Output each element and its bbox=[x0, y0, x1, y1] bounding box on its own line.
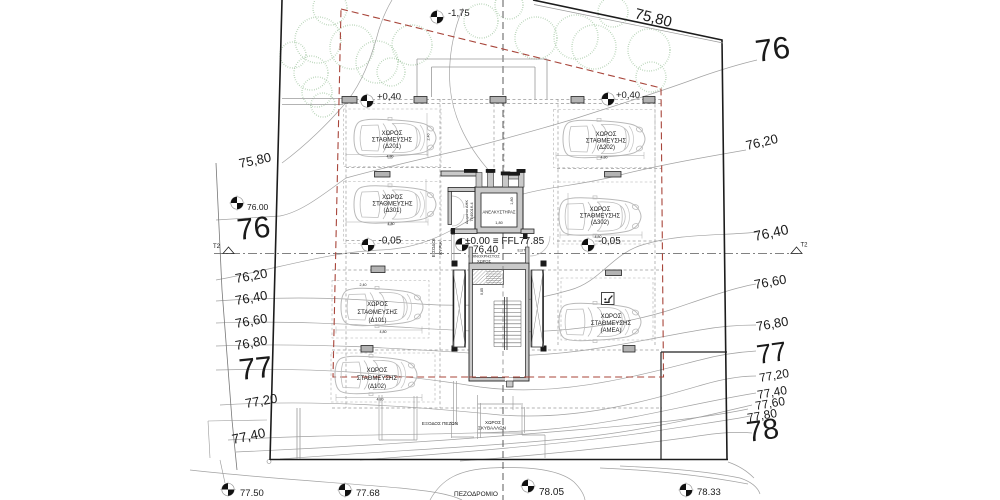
svg-text:ΕΞΙΤ: ΕΞΙΤ bbox=[518, 249, 527, 253]
svg-text:4,80: 4,80 bbox=[380, 330, 387, 334]
svg-text:4,80: 4,80 bbox=[377, 398, 384, 402]
svg-text:ΣΤΑΘΜΕΥΣΗΣ: ΣΤΑΘΜΕΥΣΗΣ bbox=[357, 376, 398, 382]
svg-text:ΣΤΑΘΜΕΥΣΗΣ: ΣΤΑΘΜΕΥΣΗΣ bbox=[580, 214, 621, 220]
svg-text:77.50: 77.50 bbox=[240, 488, 264, 499]
svg-text:ΧΩΡΟΣ: ΧΩΡΟΣ bbox=[367, 302, 388, 308]
svg-text:ΕΞΟΔΟΣ ΠΕΖΩΝ: ΕΞΟΔΟΣ ΠΕΖΩΝ bbox=[422, 421, 458, 426]
svg-text:1,80: 1,80 bbox=[510, 197, 514, 204]
svg-text:78.33: 78.33 bbox=[697, 487, 721, 498]
svg-text:78.05: 78.05 bbox=[539, 487, 564, 498]
svg-text:ΑΝΕΛΚΥΣΤΗΡΑΣ: ΑΝΕΛΚΥΣΤΗΡΑΣ bbox=[482, 210, 515, 215]
svg-text:ΣΤΑΘΜΕΥΣΗΣ: ΣΤΑΘΜΕΥΣΗΣ bbox=[591, 321, 632, 327]
svg-text:ΧΩΡΟΣ: ΧΩΡΟΣ bbox=[382, 131, 403, 137]
svg-text:-1,75: -1,75 bbox=[448, 8, 470, 19]
svg-text:(Δ101): (Δ101) bbox=[368, 318, 386, 324]
svg-text:(Δ201): (Δ201) bbox=[383, 144, 401, 150]
svg-text:(Δ301): (Δ301) bbox=[383, 208, 401, 214]
svg-text:ΧΩΡΟΣ: ΧΩΡΟΣ bbox=[382, 195, 403, 201]
svg-text:ΧΩΡΟΣ: ΧΩΡΟΣ bbox=[601, 314, 622, 320]
svg-text:ΧΩΡΟΣ: ΧΩΡΟΣ bbox=[590, 207, 611, 213]
svg-text:(Δ102): (Δ102) bbox=[368, 384, 386, 390]
svg-text:7540016-4: 7540016-4 bbox=[469, 202, 474, 222]
svg-text:T2: T2 bbox=[801, 243, 809, 249]
svg-text:-0,05: -0,05 bbox=[379, 236, 402, 247]
svg-text:ΧΩΡΟΣ: ΧΩΡΟΣ bbox=[485, 420, 501, 425]
svg-text:2,40: 2,40 bbox=[360, 283, 367, 287]
svg-text:4,80: 4,80 bbox=[388, 222, 395, 226]
svg-text:(Δ302): (Δ302) bbox=[591, 220, 609, 226]
svg-text:ΚΥΡΙΑ: ΚΥΡΙΑ bbox=[438, 240, 443, 254]
svg-text:78: 78 bbox=[745, 413, 781, 449]
svg-text:77: 77 bbox=[755, 336, 789, 370]
svg-text:0,85: 0,85 bbox=[480, 288, 484, 295]
svg-text:77: 77 bbox=[237, 351, 274, 387]
svg-text:ΧΩΡΟΣ: ΧΩΡΟΣ bbox=[367, 368, 388, 374]
svg-text:ΧΩΡΟΣ: ΧΩΡΟΣ bbox=[596, 132, 617, 138]
svg-text:ΣΤΑΘΜΕΥΣΗΣ: ΣΤΑΘΜΕΥΣΗΣ bbox=[372, 202, 413, 208]
svg-text:ΣΤΑΘΜΕΥΣΗΣ: ΣΤΑΘΜΕΥΣΗΣ bbox=[372, 138, 413, 144]
svg-text:76: 76 bbox=[753, 29, 792, 68]
svg-text:77.68: 77.68 bbox=[356, 488, 380, 499]
svg-text:1,80: 1,80 bbox=[495, 221, 502, 225]
svg-text:ΣΤΑΘΜΕΥΣΗΣ: ΣΤΑΘΜΕΥΣΗΣ bbox=[586, 139, 627, 145]
svg-text:ΣΚΥΒΑΛΛΩΝ: ΣΚΥΒΑΛΛΩΝ bbox=[478, 426, 506, 431]
svg-text:4,80: 4,80 bbox=[387, 155, 394, 159]
svg-text:2,40: 2,40 bbox=[427, 134, 431, 141]
svg-text:4,80: 4,80 bbox=[601, 156, 608, 160]
svg-text:ΣΤΑΘΜΕΥΣΗΣ: ΣΤΑΘΜΕΥΣΗΣ bbox=[357, 310, 398, 316]
svg-text:+0,40: +0,40 bbox=[377, 92, 401, 103]
svg-text:-0,05: -0,05 bbox=[598, 236, 621, 247]
svg-text:(ΑΜΕΑ): (ΑΜΕΑ) bbox=[601, 328, 622, 334]
svg-text:76: 76 bbox=[235, 211, 272, 247]
svg-text:(Δ202): (Δ202) bbox=[597, 145, 615, 151]
svg-text:+0,40: +0,40 bbox=[616, 90, 640, 101]
svg-text:ΕΙΣΟΔΟΙ: ΕΙΣΟΔΟΙ bbox=[431, 239, 436, 257]
svg-text:ΠΕΖΟΔΡΟΜΙΟ: ΠΕΖΟΔΡΟΜΙΟ bbox=[454, 491, 498, 498]
svg-text:T2: T2 bbox=[213, 244, 221, 250]
